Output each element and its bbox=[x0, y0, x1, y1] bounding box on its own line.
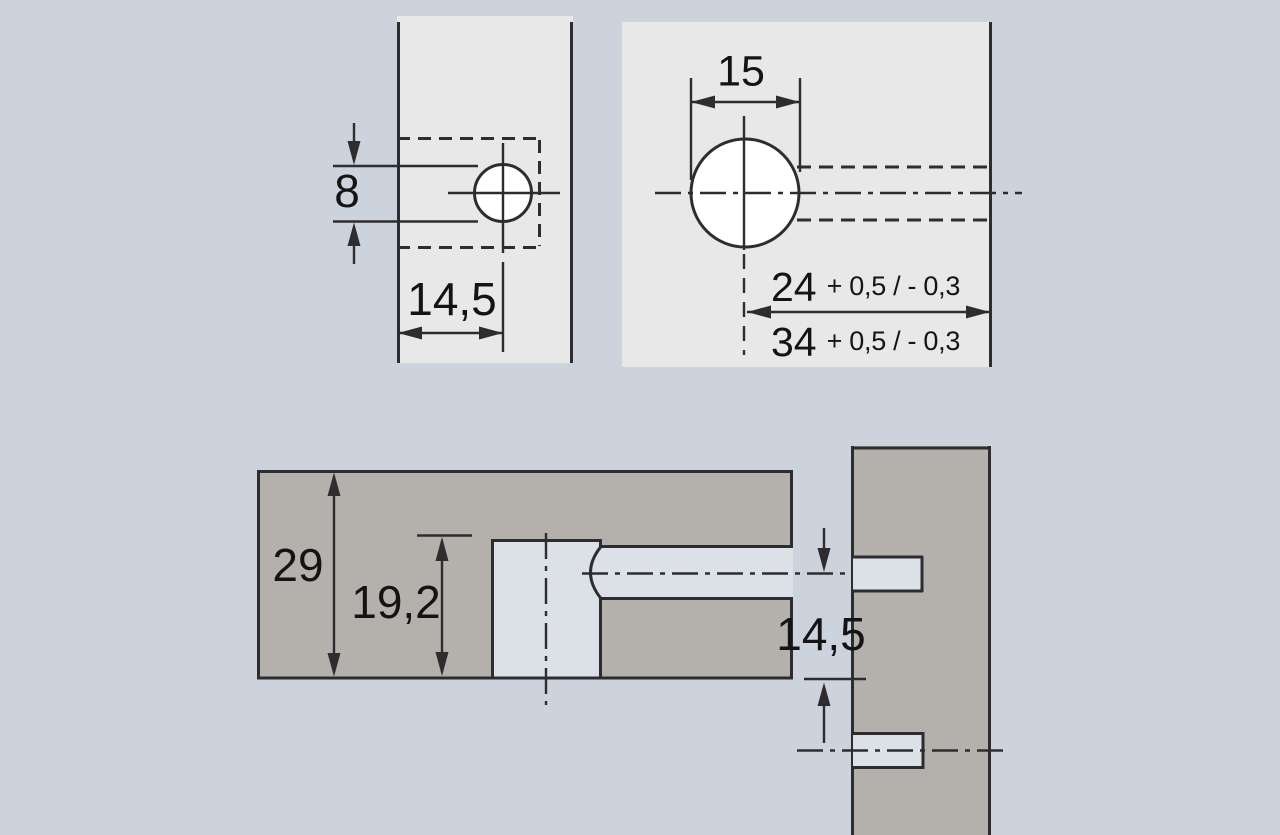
dim-8-arrow-top-head bbox=[348, 141, 361, 165]
dim-label-24-with-tolerance: 24 + 0,5 / - 0,3 bbox=[771, 267, 960, 308]
upper-dowel-hole bbox=[853, 556, 923, 592]
dim-label-34-tolerance: + 0,5 / - 0,3 bbox=[827, 328, 960, 355]
dim-label-19-2: 19,2 bbox=[351, 579, 441, 625]
dim-14-5-right-arrow-down-head bbox=[818, 548, 831, 572]
section-view bbox=[257, 446, 1007, 835]
drawing-linework bbox=[0, 0, 1280, 835]
dim-8-arrow-bottom-head bbox=[348, 223, 361, 247]
front-view-panel bbox=[622, 22, 991, 367]
dim-label-8: 8 bbox=[334, 168, 360, 214]
dim-label-14-5-top: 14,5 bbox=[407, 276, 497, 322]
dim-label-24-tolerance: + 0,5 / - 0,3 bbox=[827, 273, 960, 300]
dim-label-34: 34 bbox=[771, 322, 817, 363]
dim-label-34-with-tolerance: 34 + 0,5 / - 0,3 bbox=[771, 322, 960, 363]
dim-14-5-right-arrow-up-head bbox=[818, 683, 831, 707]
technical-drawing: 8 14,5 15 24 + 0,5 / - 0,3 34 + 0,5 / - … bbox=[0, 0, 1280, 835]
section-vertical-panel bbox=[851, 446, 991, 835]
dim-label-24: 24 bbox=[771, 267, 817, 308]
dim-label-15: 15 bbox=[717, 51, 765, 94]
front-view bbox=[622, 22, 1022, 367]
dim-label-14-5-right: 14,5 bbox=[776, 611, 866, 657]
dim-label-29: 29 bbox=[272, 542, 323, 588]
